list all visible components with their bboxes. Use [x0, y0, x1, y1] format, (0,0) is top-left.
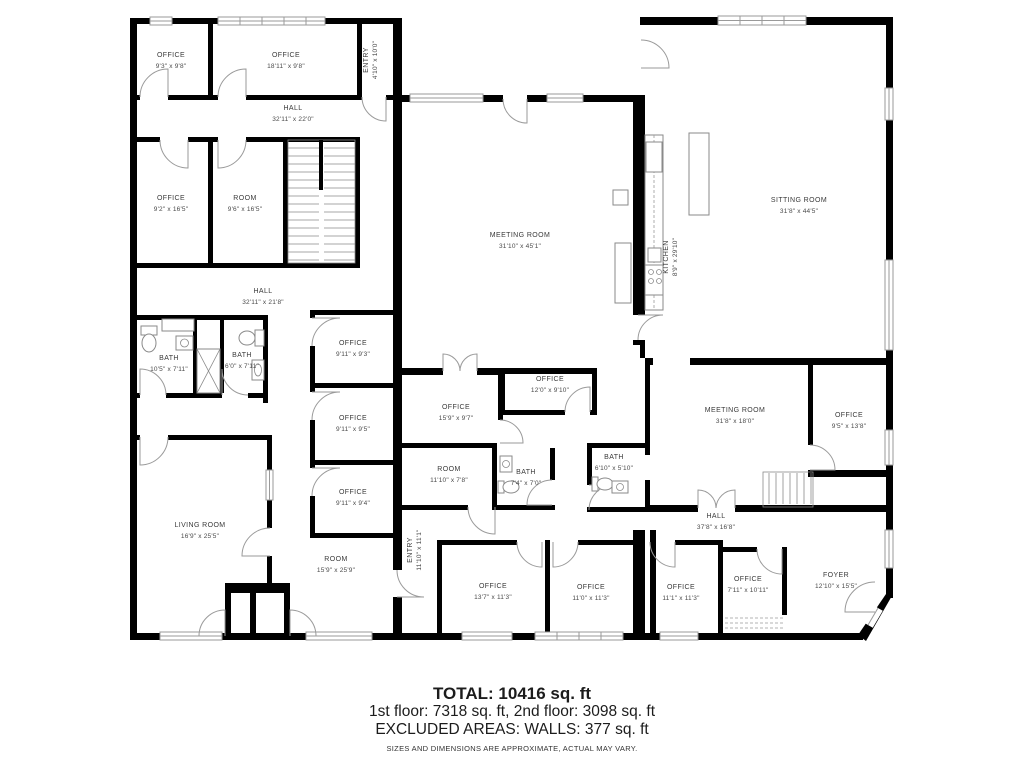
- room-label-foyer: FOYER: [823, 572, 849, 579]
- room-label-entry-bottom: ENTRY: [407, 537, 414, 563]
- room-label-office-e: OFFICE: [339, 415, 367, 422]
- total-area-text: TOTAL: 10416 sq. ft: [0, 684, 1024, 704]
- room-dims-entry-bottom: 11'10" x 11'1": [416, 529, 423, 571]
- room-dims-office-i: 13'7" x 11'3": [474, 594, 512, 601]
- room-dims-bath-d: 6'10" x 5'10": [595, 465, 634, 472]
- room-label-room-a: ROOM: [233, 195, 256, 202]
- room-label-hall-right: HALL: [706, 513, 725, 520]
- room-label-bath-d: BATH: [604, 454, 624, 461]
- room-dims-office-l: 11'1" x 11'3": [662, 595, 700, 602]
- room-dims-hall-right: 37'8" x 16'8": [697, 524, 736, 531]
- disclaimer-text: SIZES AND DIMENSIONS ARE APPROXIMATE, AC…: [0, 744, 1024, 753]
- room-dims-bath-a: 10'5" x 7'11": [150, 366, 188, 373]
- room-dims-office-c: 9'2" x 16'5": [154, 206, 189, 213]
- room-label-office-g: OFFICE: [536, 376, 564, 383]
- room-dims-office-h: 15'9" x 9'7": [439, 415, 474, 422]
- floor-areas-text: 1st floor: 7318 sq. ft, 2nd floor: 3098 …: [0, 703, 1024, 721]
- kitchen-fixtures: [613, 133, 709, 310]
- room-label-office-l: OFFICE: [667, 584, 695, 591]
- staircase-upper-left: [288, 140, 355, 263]
- room-label-office-b: OFFICE: [272, 52, 300, 59]
- room-dims-meeting-room-a: 31'10" x 45'1": [499, 243, 542, 250]
- room-dims-office-e: 9'11" x 9'5": [336, 426, 370, 433]
- room-dims-kitchen: 8'9" x 29'10": [672, 237, 679, 276]
- refrigerator: [615, 243, 631, 303]
- room-dims-hall-top: 32'11" x 22'0": [272, 116, 314, 123]
- room-dims-living-room: 16'9" x 25'5": [181, 533, 220, 540]
- room-dims-sitting-room: 31'8" x 44'5": [780, 208, 819, 215]
- room-dims-office-j: 11'0" x 11'3": [572, 595, 610, 602]
- room-dims-office-k: 9'5" x 13'8": [832, 423, 867, 430]
- room-dims-meeting-room-b: 31'8" x 18'0": [716, 418, 755, 425]
- room-label-office-i: OFFICE: [479, 583, 507, 590]
- room-label-room-c: ROOM: [437, 466, 460, 473]
- room-label-entry-top: ENTRY: [363, 47, 370, 73]
- room-dims-office-d: 9'11" x 9'3": [336, 351, 370, 358]
- room-dims-bath-c: 7'4" x 7'0": [511, 480, 542, 487]
- room-label-living-room: LIVING ROOM: [174, 522, 225, 529]
- room-dims-room-b: 15'9" x 25'9": [317, 567, 356, 574]
- windows-layer: [150, 16, 893, 640]
- room-dims-office-m: 7'11" x 10'11": [727, 587, 769, 594]
- floor-plan-drawing: OFFICE 9'3" x 9'8" OFFICE 18'11" x 9'8" …: [0, 0, 1024, 768]
- floor-plan: OFFICE 9'3" x 9'8" OFFICE 18'11" x 9'8" …: [0, 0, 1024, 768]
- room-dims-bath-b: 6'0" x 7'11": [225, 363, 259, 370]
- room-dims-office-g: 12'0" x 9'10": [531, 387, 570, 394]
- room-dims-foyer: 12'10" x 15'5": [815, 583, 858, 590]
- room-label-bath-a: BATH: [159, 355, 179, 362]
- room-dims-room-a: 9'6" x 16'5": [228, 206, 263, 213]
- room-labels: OFFICE 9'3" x 9'8" OFFICE 18'11" x 9'8" …: [150, 40, 867, 602]
- steps-office-m: [725, 618, 785, 628]
- room-dims-office-a: 9'3" x 9'8": [156, 63, 187, 70]
- excluded-areas-text: EXCLUDED AREAS: WALLS: 377 sq. ft: [0, 721, 1024, 739]
- room-label-office-c: OFFICE: [157, 195, 185, 202]
- room-label-meeting-room-b: MEETING ROOM: [705, 407, 765, 414]
- room-label-office-f: OFFICE: [339, 489, 367, 496]
- room-label-kitchen: KITCHEN: [663, 240, 670, 274]
- room-label-office-d: OFFICE: [339, 340, 367, 347]
- room-label-room-b: ROOM: [324, 556, 347, 563]
- room-label-meeting-room-a: MEETING ROOM: [490, 232, 550, 239]
- room-dims-office-b: 18'11" x 9'8": [267, 63, 305, 70]
- room-label-office-h: OFFICE: [442, 404, 470, 411]
- room-label-bath-c: BATH: [516, 469, 536, 476]
- room-label-office-a: OFFICE: [157, 52, 185, 59]
- kitchen-island: [689, 133, 709, 215]
- room-label-office-k: OFFICE: [835, 412, 863, 419]
- room-label-office-m: OFFICE: [734, 576, 762, 583]
- room-dims-entry-top: 4'10" x 10'0": [372, 40, 379, 79]
- room-label-bath-b: BATH: [232, 352, 252, 359]
- room-label-sitting-room: SITTING ROOM: [771, 197, 827, 204]
- room-dims-room-c: 11'10" x 7'8": [430, 477, 468, 484]
- room-label-hall-mid: HALL: [253, 288, 272, 295]
- room-dims-office-f: 9'11" x 9'4": [336, 500, 370, 507]
- room-label-office-j: OFFICE: [577, 584, 605, 591]
- room-dims-hall-mid: 32'11" x 21'8": [242, 299, 284, 306]
- walls-layer: [130, 17, 893, 641]
- room-label-hall-top: HALL: [283, 105, 302, 112]
- staircase-right: [763, 472, 813, 507]
